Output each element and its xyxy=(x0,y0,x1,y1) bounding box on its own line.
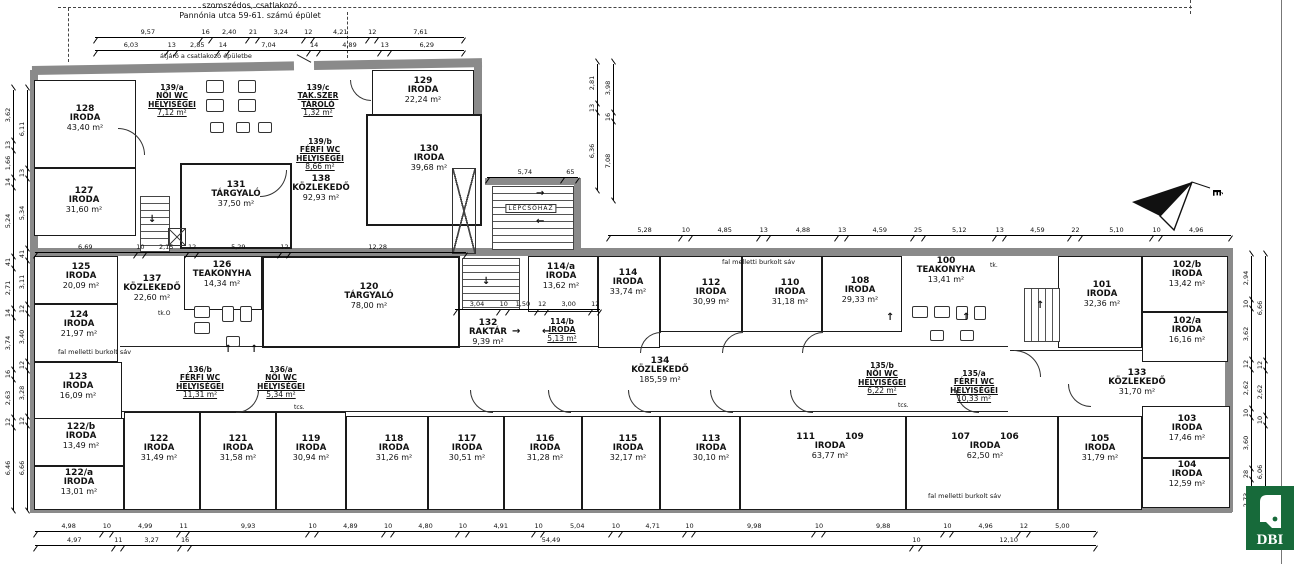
dimension-label: 6,11 xyxy=(19,122,27,136)
dimension-segment: 16 xyxy=(604,112,613,122)
dimension-segment: 14 xyxy=(309,41,319,50)
room-139b-rl-area: 8,66 m² xyxy=(287,163,353,171)
dimension-row-bottom2: 4,97113,271654,491012,10 xyxy=(35,536,1096,546)
wall-strip-note: fal melletti burkolt sáv xyxy=(928,492,1001,500)
dimension-label: 6,66 xyxy=(19,460,27,474)
room-label-130: 130IRODA39,68 m² xyxy=(392,144,466,173)
room-118 xyxy=(346,416,428,510)
toilet-fixture xyxy=(930,330,944,341)
dimension-label: 16 xyxy=(201,28,209,36)
dimension-label: 4,98 xyxy=(61,522,75,530)
dimension-segment: 12 xyxy=(18,416,27,425)
dimension-label: 7,61 xyxy=(413,28,427,36)
toilet-fixture xyxy=(236,122,250,133)
dimension-segment: 13 xyxy=(837,226,847,235)
dimension-label: 13 xyxy=(760,226,768,234)
dimension-label: 3,74 xyxy=(5,336,13,350)
dimension-label: 12 xyxy=(304,28,312,36)
dimension-label: 41 xyxy=(19,250,27,258)
wall-strip-note: fal melletti burkolt sáv xyxy=(58,348,131,356)
dimension-label: 12,28 xyxy=(368,243,387,251)
room-126-rl-area: 14,34 m² xyxy=(185,280,259,289)
room-135b-rl-area: 6,22 m² xyxy=(850,387,914,395)
wc-arrow: ↑ xyxy=(886,312,894,323)
room-label-114: 114IRODA33,74 m² xyxy=(591,268,665,297)
dimension-segment: 6,46 xyxy=(4,427,13,510)
dimension-label: 5,74 xyxy=(518,168,532,176)
dimension-segment: 10 xyxy=(912,536,922,545)
dimension-segment: 3,40 xyxy=(18,313,27,360)
room-label-124: 124IRODA21,97 m² xyxy=(42,310,116,339)
toilet-fixture xyxy=(974,306,986,320)
dimension-segment: 7,04 xyxy=(228,41,310,50)
dimension-label: 25 xyxy=(914,226,922,234)
shaft xyxy=(452,168,476,254)
dimension-segment: 10 xyxy=(458,522,467,531)
dimension-segment: 6,66 xyxy=(18,425,27,510)
dimension-segment: 12 xyxy=(187,243,197,252)
dimension-label: 2,81 xyxy=(589,76,597,90)
dimension-segment: 4,85 xyxy=(691,226,759,235)
dimension-segment: 4,99 xyxy=(112,522,179,531)
dimension-label: 10 xyxy=(943,522,951,530)
room-115-rl-area: 32,17 m² xyxy=(591,454,665,463)
dimension-segment: 16 xyxy=(4,369,13,379)
room-label-103: 103IRODA17,46 m² xyxy=(1150,414,1224,443)
room-101-rl-area: 32,36 m² xyxy=(1065,300,1139,309)
room-label-137: 137KÖZLEKEDŐ22,60 m² xyxy=(115,274,189,303)
dimension-segment: 16 xyxy=(201,28,211,37)
neighbor-building-note: szomszédos, csatlakozó Pannónia utca 59-… xyxy=(60,1,440,22)
tcs-annotation: tcs. xyxy=(898,402,909,409)
dimension-segment: 3,62 xyxy=(4,90,13,140)
dimension-segment: 2,15 xyxy=(145,243,187,252)
dimension-segment: 54,49 xyxy=(190,536,911,545)
room-label-110: 110IRODA31,18 m² xyxy=(753,278,827,307)
property-dashed-right xyxy=(1190,0,1191,14)
room-label-108: 108IRODA29,33 m² xyxy=(823,276,897,305)
wall xyxy=(32,61,294,75)
dimension-label: 12 xyxy=(280,243,288,251)
stairwell-label: LÉPCSŐHÁZ xyxy=(505,204,556,213)
passage-note: átjáró a csatlakozó épületbe xyxy=(160,52,252,60)
dimension-label: 10 xyxy=(1257,416,1265,424)
toilet-fixture xyxy=(194,306,210,318)
dimension-segment: 12 xyxy=(18,361,27,370)
dimension-label: 13 xyxy=(589,103,597,111)
room-104-rl-area: 12,59 m² xyxy=(1150,480,1224,489)
dimension-label: 7,04 xyxy=(261,41,275,49)
dimension-label: 1,50 xyxy=(516,300,530,308)
dimension-label: 12 xyxy=(538,300,546,308)
dimension-label: 6,29 xyxy=(420,41,434,49)
room-125-rl-area: 20,09 m² xyxy=(44,282,118,291)
dimension-label: 4,91 xyxy=(493,522,507,530)
dimension-label: 2,40 xyxy=(222,28,236,36)
room-118-rl-area: 31,26 m² xyxy=(357,454,431,463)
room-114b-rl-area: 5,13 m² xyxy=(532,335,592,343)
dimension-label: 12 xyxy=(19,305,27,313)
dimension-segment: 5,04 xyxy=(543,522,611,531)
room-label-118: 118IRODA31,26 m² xyxy=(357,434,431,463)
room-124-rl-area: 21,97 m² xyxy=(42,330,116,339)
raktar-arrow: → xyxy=(512,326,520,337)
wc-arrow: ↑ xyxy=(224,344,232,355)
wc-arrow: ↑ xyxy=(250,344,258,355)
room-label-136b: 136/bFÉRFI WC HELYISÉGEI11,31 m² xyxy=(168,366,232,400)
room-135b-rl-type: NŐI WC HELYISÉGEI xyxy=(850,370,914,387)
dimension-segment: 10 xyxy=(102,522,111,531)
room-114-rl-area: 33,74 m² xyxy=(591,288,665,297)
dimension-label: 4,89 xyxy=(342,41,356,49)
room-102a-rl-area: 16,16 m² xyxy=(1150,336,1224,345)
dimension-row-right_inner: 6,66122,62106,06 xyxy=(1256,256,1266,520)
room-120-rl-area: 78,00 m² xyxy=(332,302,406,311)
room-label-119: 119IRODA30,94 m² xyxy=(274,434,348,463)
dimension-segment: 3,60 xyxy=(1242,417,1251,468)
dimension-label: 54,49 xyxy=(542,536,561,544)
dimension-label: 4,89 xyxy=(343,522,357,530)
room-label-135a: 135/aFÉRFI WC HELYISÉGEI10,33 m² xyxy=(941,370,1007,404)
dimension-segment: 10 xyxy=(685,522,694,531)
dimension-segment: 5,74 xyxy=(487,168,563,177)
dimension-segment: 10 xyxy=(384,522,393,531)
door-arc xyxy=(470,390,493,413)
dimension-segment: 2,81 xyxy=(588,64,597,103)
dimension-segment: 2,62 xyxy=(1256,370,1265,416)
room-117 xyxy=(428,416,504,510)
room-label-115: 115IRODA32,17 m² xyxy=(591,434,665,463)
room-label-139a: 139/aNŐI WC HELYISÉGEI7,12 m² xyxy=(140,84,204,118)
dimension-segment: 12 xyxy=(18,304,27,313)
dimension-label: 6,03 xyxy=(124,41,138,49)
room-108-rl-area: 29,33 m² xyxy=(823,296,897,305)
dimension-label: 12 xyxy=(19,416,27,424)
dimension-label: 5,34 xyxy=(19,205,27,219)
dbi-logo: DBI xyxy=(1246,486,1294,550)
neighbor-line1: szomszédos, csatlakozó xyxy=(60,1,440,11)
room-label-139c: 139/cTAK.SZER TÁROLÓ1,32 m² xyxy=(288,84,348,118)
dimension-segment: 10 xyxy=(1242,408,1251,417)
dimension-segment: 12 xyxy=(1019,522,1029,531)
dimension-label: 16 xyxy=(181,536,189,544)
dimension-label: 5,12 xyxy=(952,226,966,234)
room-113 xyxy=(660,416,740,510)
dimension-segment: 4,71 xyxy=(621,522,685,531)
frame-line xyxy=(1281,0,1282,564)
room-128-rl-area: 43,40 m² xyxy=(48,124,122,133)
dimension-label: 13 xyxy=(5,141,13,149)
dimension-label: 4,59 xyxy=(1030,226,1044,234)
room-116-rl-area: 31,28 m² xyxy=(508,454,582,463)
dimension-segment: 10 xyxy=(1242,299,1251,308)
dimension-label: 10 xyxy=(384,522,392,530)
dimension-label: 10 xyxy=(308,522,316,530)
room-136a-rl-area: 5,34 m² xyxy=(249,391,313,399)
dimension-segment: 14 xyxy=(4,177,13,187)
dimension-label: 14 xyxy=(310,41,318,49)
stair-arrow: ← xyxy=(536,216,544,227)
dimension-segment: 11 xyxy=(179,522,188,531)
door-arc xyxy=(790,390,813,413)
room-label-125: 125IRODA20,09 m² xyxy=(44,262,118,291)
room-label-131: 131TÁRGYALÓ37,50 m² xyxy=(199,180,273,209)
dimension-label: 10 xyxy=(685,522,693,530)
toilet-fixture xyxy=(238,80,256,93)
room-139c-rl-type: TAK.SZER TÁROLÓ xyxy=(288,92,348,109)
room-105 xyxy=(1058,416,1142,510)
stairwell-steps xyxy=(492,186,574,250)
door-arc xyxy=(628,390,651,413)
room-label-116: 116IRODA31,28 m² xyxy=(508,434,582,463)
dimension-label: 9,93 xyxy=(241,522,255,530)
toilet-fixture xyxy=(238,99,256,112)
room-136b-rl-area: 11,31 m² xyxy=(168,391,232,399)
dimension-label: 3,98 xyxy=(605,81,613,95)
toilet-fixture xyxy=(934,306,950,318)
room-label-101: 101IRODA32,36 m² xyxy=(1065,280,1139,309)
dimension-label: 16 xyxy=(5,370,13,378)
north-arrow-icon: É xyxy=(1128,176,1228,234)
room-113-rl-area: 30,10 m² xyxy=(674,454,748,463)
room-135a-rl-area: 10,33 m² xyxy=(941,395,1007,403)
dimension-segment: 5,28 xyxy=(608,226,681,235)
dimension-label: 5,28 xyxy=(637,226,651,234)
toilet-fixture xyxy=(912,306,928,318)
dimension-segment: 7,61 xyxy=(377,28,464,37)
dimension-segment: 4,91 xyxy=(468,522,534,531)
dimension-label: 6,36 xyxy=(589,144,597,158)
passage-leader-line xyxy=(297,54,312,62)
dimension-label: 12 xyxy=(591,300,599,308)
north-letter: É xyxy=(1210,189,1223,197)
room-100-rl-area: 13,41 m² xyxy=(909,276,983,285)
dimension-segment: 9,88 xyxy=(824,522,943,531)
dimension-segment: 6,69 xyxy=(35,243,136,252)
dimension-segment: 10 xyxy=(814,522,823,531)
door-arc xyxy=(1068,384,1091,407)
dimension-segment: 12,10 xyxy=(921,536,1096,545)
dimension-segment: 12 xyxy=(280,243,290,252)
dimension-label: 4,88 xyxy=(796,226,810,234)
room-139c-rl-area: 1,32 m² xyxy=(288,109,348,117)
dimension-label: 13 xyxy=(19,169,27,177)
dimension-segment: 9,93 xyxy=(188,522,308,531)
dimension-label: 12 xyxy=(1243,360,1251,368)
dimension-segment: 4,59 xyxy=(1005,226,1070,235)
dimension-label: 4,71 xyxy=(645,522,659,530)
dimension-segment: 2,94 xyxy=(1242,256,1251,299)
dimension-label: 2,62 xyxy=(1243,381,1251,395)
room-122-rl-area: 31,49 m² xyxy=(122,454,196,463)
dimension-row-stair_h: 5,7465 xyxy=(487,168,578,178)
dimension-label: 12 xyxy=(5,418,13,426)
dimension-label: 5,10 xyxy=(1109,226,1123,234)
dimension-row-stair_v2: 3,98167,08 xyxy=(604,64,614,200)
room-label-135b: 135/bNŐI WC HELYISÉGEI6,22 m² xyxy=(850,362,914,396)
logo-text: DBI xyxy=(1257,532,1284,548)
room-134-rl-area: 185,59 m² xyxy=(615,376,705,385)
dimension-segment: 65 xyxy=(563,168,578,177)
neighbor-line2: Pannónia utca 59-61. számú épület xyxy=(60,11,440,21)
room-label-117: 117IRODA30,51 m² xyxy=(430,434,504,463)
dimension-label: 2,63 xyxy=(5,391,13,405)
dimension-label: 3,40 xyxy=(19,330,27,344)
dimension-label: 28 xyxy=(1243,470,1251,478)
dimension-label: 2,71 xyxy=(5,281,13,295)
room-label-122b: 122/bIRODA13,49 m² xyxy=(44,422,118,451)
dimension-label: 14 xyxy=(5,178,13,186)
dimension-segment: 10 xyxy=(611,522,620,531)
room-label-128: 128IRODA43,40 m² xyxy=(48,104,122,133)
dimension-label: 5,29 xyxy=(231,243,245,251)
dimension-segment: 1,50 xyxy=(508,300,537,309)
dimension-label: 11 xyxy=(114,536,122,544)
room-111_109 xyxy=(740,416,906,510)
dimension-label: 4,96 xyxy=(978,522,992,530)
dimension-segment: 3,11 xyxy=(18,260,27,304)
room-label-136a: 136/aNŐI WC HELYISÉGEI5,34 m² xyxy=(249,366,313,400)
toilet-fixture xyxy=(240,306,252,322)
dimension-segment: 22 xyxy=(1070,226,1081,235)
room-127-rl-area: 31,60 m² xyxy=(47,206,121,215)
dimension-label: 3,11 xyxy=(19,275,27,289)
dimension-label: 10 xyxy=(459,522,467,530)
dimension-segment: 10 xyxy=(534,522,543,531)
dimension-label: 21 xyxy=(249,28,257,36)
dimension-segment: 12 xyxy=(537,300,546,309)
dimension-label: 5,24 xyxy=(5,214,13,228)
dimension-segment: 12 xyxy=(1256,360,1265,370)
dimension-label: 10 xyxy=(1243,300,1251,308)
room-label-105: 105IRODA31,79 m² xyxy=(1063,434,1137,463)
dimension-segment: 5,34 xyxy=(18,178,27,248)
dimension-segment: 3,04 xyxy=(455,300,499,309)
room-139a-rl-type: NŐI WC HELYISÉGEI xyxy=(140,92,204,109)
dimension-label: 12,10 xyxy=(999,536,1018,544)
dimension-segment: 41 xyxy=(4,256,13,269)
dimension-segment: 5,24 xyxy=(4,187,13,256)
dimension-segment: 3,98 xyxy=(604,64,613,112)
dimension-label: 3,62 xyxy=(5,108,13,122)
dimension-segment: 4,98 xyxy=(35,522,102,531)
dimension-label: 41 xyxy=(5,258,13,266)
dimension-segment: 10 xyxy=(308,522,317,531)
dimension-segment: 13 xyxy=(167,41,177,50)
wc-arrow: ↑ xyxy=(962,312,970,323)
dimension-label: 4,97 xyxy=(67,536,81,544)
dimension-segment: 4,88 xyxy=(769,226,838,235)
dimension-label: 6,06 xyxy=(1257,465,1265,479)
dimension-segment: 4,96 xyxy=(952,522,1019,531)
dimension-label: 11 xyxy=(179,522,187,530)
dimension-segment: 4,21 xyxy=(313,28,368,37)
dimension-label: 12 xyxy=(1020,522,1028,530)
dimension-label: 10 xyxy=(815,522,823,530)
dimension-label: 2,85 xyxy=(190,41,204,49)
dimension-segment: 6,66 xyxy=(1256,256,1265,360)
dimension-label: 4,80 xyxy=(418,522,432,530)
dimension-label: 2,62 xyxy=(1257,385,1265,399)
dimension-segment: 9,98 xyxy=(694,522,814,531)
room-112-rl-area: 30,99 m² xyxy=(674,298,748,307)
room-135a-rl-type: FÉRFI WC HELYISÉGEI xyxy=(941,378,1007,395)
dimension-label: 22 xyxy=(1071,226,1079,234)
dimension-segment: 2,85 xyxy=(176,41,218,50)
dimension-label: 12 xyxy=(19,361,27,369)
dimension-segment: 2,62 xyxy=(1242,369,1251,408)
dimension-segment: 3,24 xyxy=(258,28,303,37)
dimension-segment: 6,29 xyxy=(390,41,464,50)
toilet-fixture xyxy=(194,322,210,334)
room-129-rl-area: 22,24 m² xyxy=(386,96,460,105)
room-label-126: 126TEAKONYHA14,34 m² xyxy=(185,260,259,289)
dimension-label: 1,66 xyxy=(5,156,13,170)
dimension-segment: 12 xyxy=(1242,359,1251,368)
dimension-label: 6,69 xyxy=(78,243,92,251)
dimension-segment: 10 xyxy=(499,300,508,309)
dimension-segment: 10 xyxy=(681,226,690,235)
dimension-segment: 10 xyxy=(136,243,146,252)
room-133-rl-area: 31,70 m² xyxy=(1092,388,1182,397)
dimension-label: 13 xyxy=(168,41,176,49)
room-label-102b: 102/bIRODA13,42 m² xyxy=(1150,260,1224,289)
door-arc xyxy=(548,390,571,413)
dimension-label: 12 xyxy=(368,28,376,36)
room-label-111_109: 111109IRODA63,77 m² xyxy=(775,432,885,461)
door-arc xyxy=(350,80,371,101)
dimension-label: 5,04 xyxy=(570,522,584,530)
dimension-segment: 2,71 xyxy=(4,268,13,308)
dimension-segment: 25 xyxy=(913,226,924,235)
dimension-label: 13 xyxy=(996,226,1004,234)
room-label-104: 104IRODA12,59 m² xyxy=(1150,460,1224,489)
dimension-label: 7,08 xyxy=(605,153,613,167)
wall xyxy=(485,178,581,185)
dimension-label: 13 xyxy=(838,226,846,234)
room-121-rl-area: 31,58 m² xyxy=(201,454,275,463)
dimension-label: 4,21 xyxy=(333,28,347,36)
dimension-segment: 13 xyxy=(4,140,13,150)
dimension-segment: 5,29 xyxy=(197,243,280,252)
room-139b-rl-type: FÉRFI WC HELYISÉGEI xyxy=(287,146,353,163)
dimension-segment: 41 xyxy=(18,248,27,261)
door-arc xyxy=(118,128,145,155)
room-102b-rl-area: 13,42 m² xyxy=(1150,280,1224,289)
dimension-segment: 3,28 xyxy=(18,370,27,416)
room-label-139b: 139/bFÉRFI WC HELYISÉGEI8,66 m² xyxy=(287,138,353,172)
dimension-segment: 6,36 xyxy=(588,112,597,190)
wall xyxy=(574,178,581,254)
room-label-127: 127IRODA31,60 m² xyxy=(47,186,121,215)
room-label-120: 120TÁRGYALÓ78,00 m² xyxy=(332,282,406,311)
dimension-label: 6,66 xyxy=(1257,301,1265,315)
room-label-123: 123IRODA16,09 m² xyxy=(41,372,115,401)
dimension-label: 4,59 xyxy=(873,226,887,234)
dimension-segment: 12 xyxy=(368,28,377,37)
dimension-label: 10 xyxy=(500,300,508,308)
dimension-row-left_outer: 3,62131,66145,24412,71143,74162,63126,46 xyxy=(4,90,14,510)
room-label-114a: 114/aIRODA13,62 m² xyxy=(524,262,598,291)
room-105-rl-area: 31,79 m² xyxy=(1063,454,1137,463)
room-131-rl-area: 37,50 m² xyxy=(199,200,273,209)
dimension-segment: 12 xyxy=(304,28,313,37)
room-110-rl-area: 31,18 m² xyxy=(753,298,827,307)
dimension-segment: 1,66 xyxy=(4,150,13,177)
room-139a-rl-area: 7,12 m² xyxy=(140,109,204,117)
dimension-segment: 5,00 xyxy=(1029,522,1096,531)
tk-annotation: tk. xyxy=(990,262,998,269)
